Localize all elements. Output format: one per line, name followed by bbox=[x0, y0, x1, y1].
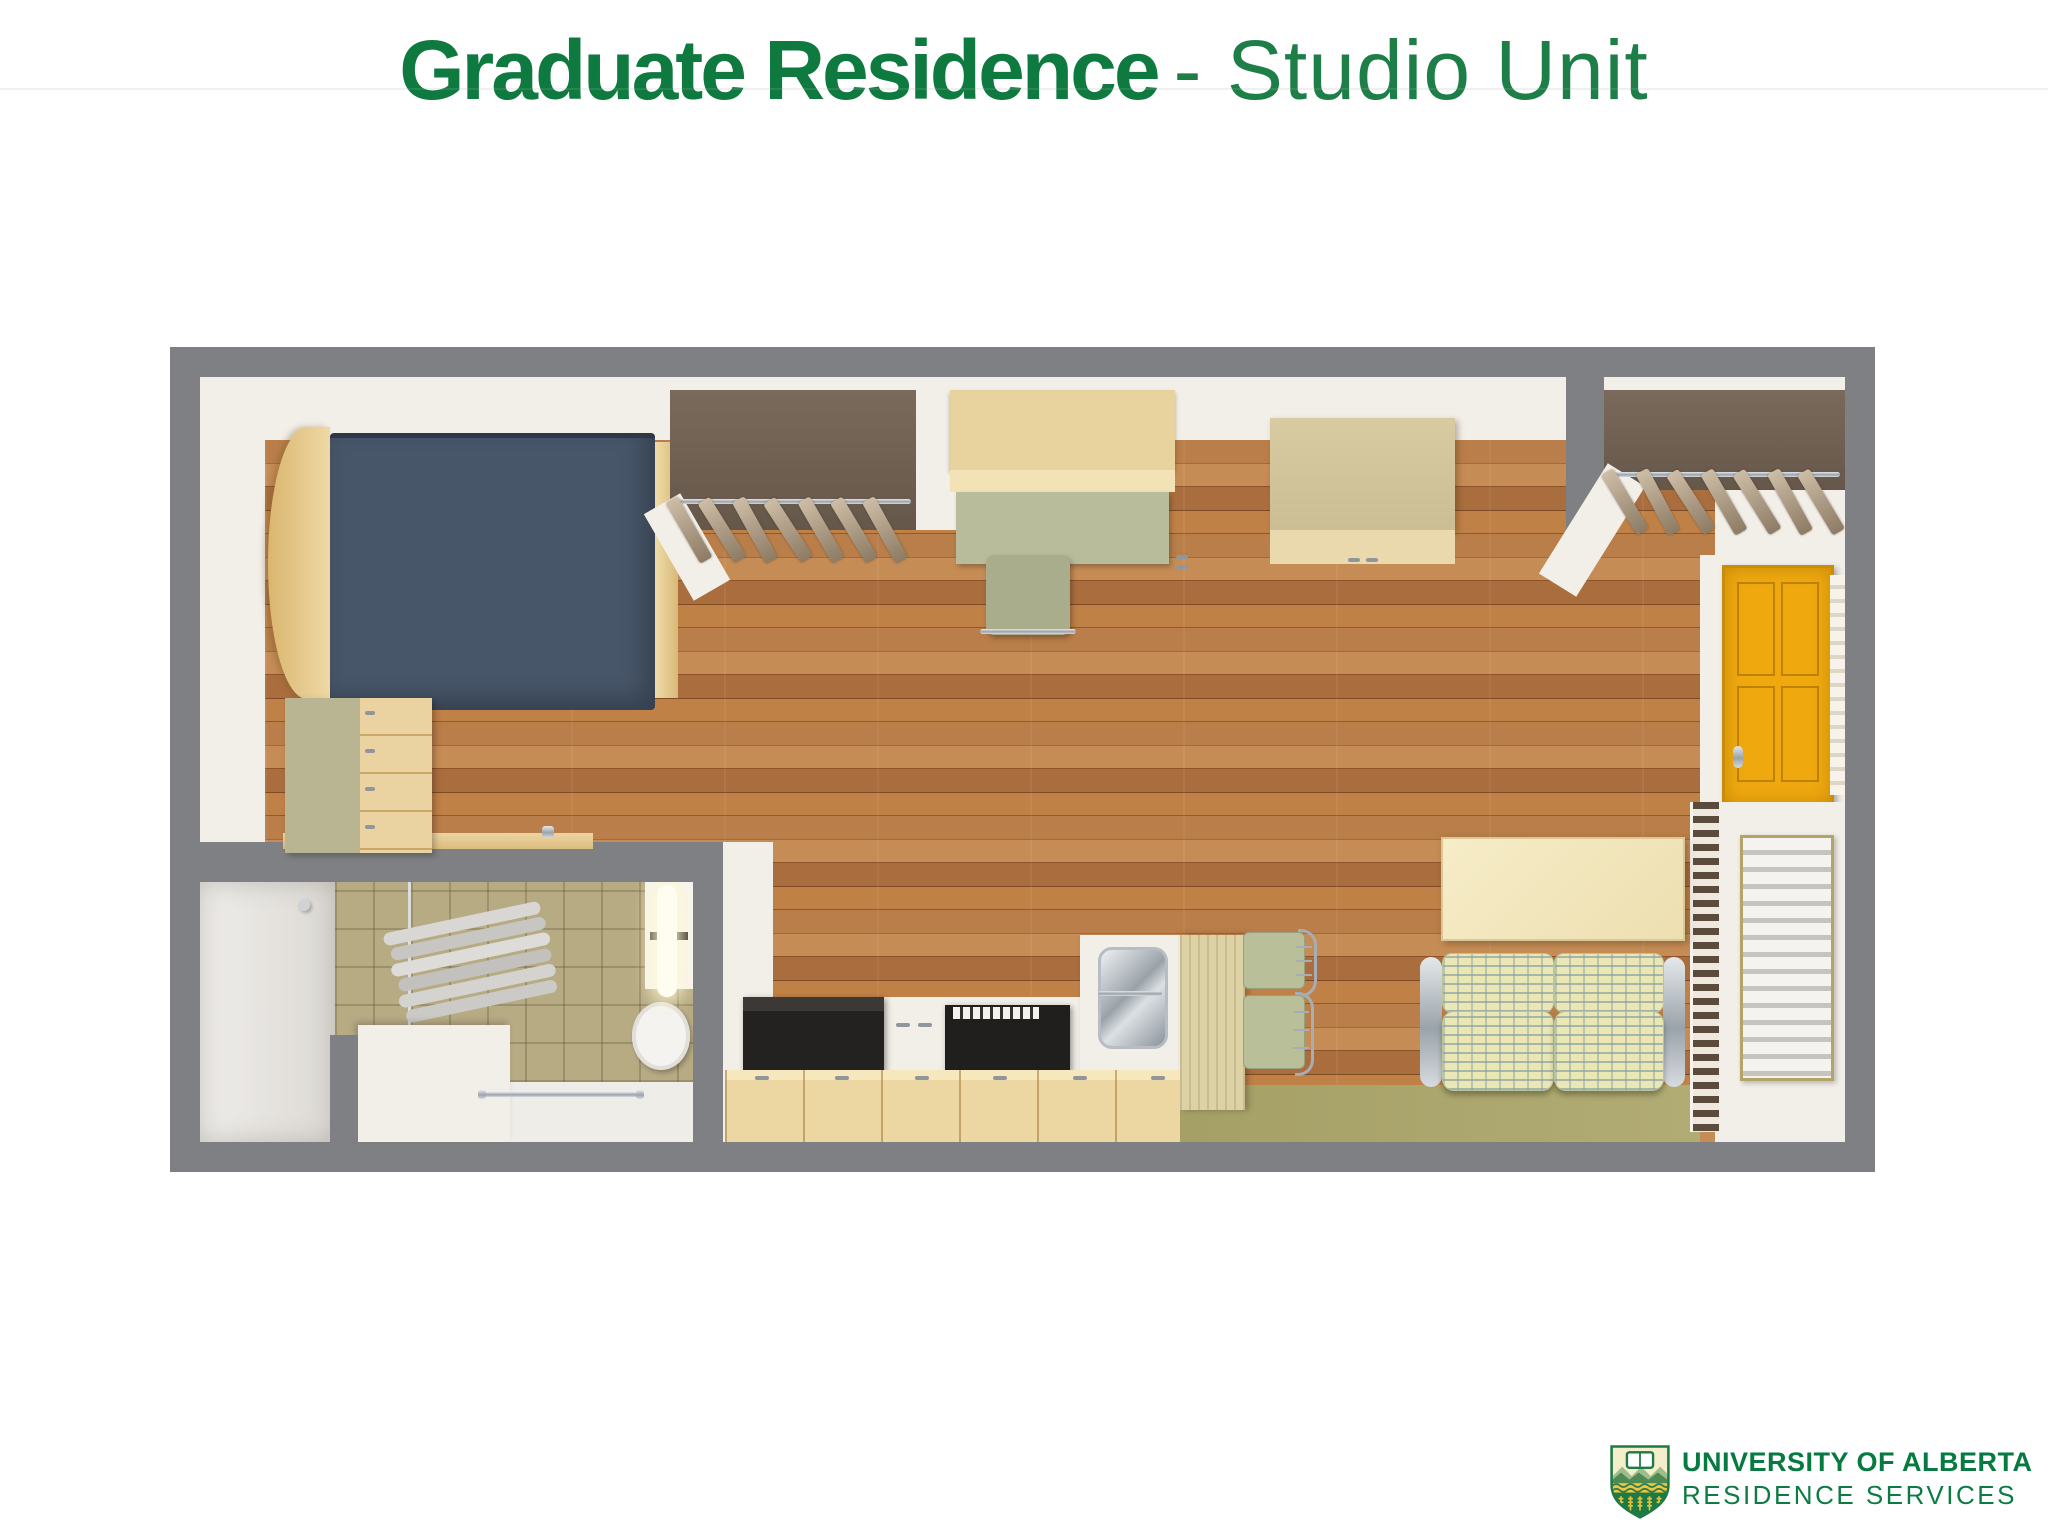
title-rest: - Studio Unit bbox=[1174, 23, 1649, 117]
loveseat-arm bbox=[1420, 957, 1442, 1087]
grab-bar-foot bbox=[636, 1090, 644, 1099]
dining-chair-back bbox=[1298, 929, 1317, 997]
wall-mounted-table bbox=[1441, 837, 1685, 941]
loveseat-seat-cushion bbox=[1442, 1011, 1554, 1091]
dining-chair-back bbox=[1295, 992, 1314, 1076]
range bbox=[945, 1005, 1070, 1078]
shower-stall bbox=[200, 882, 335, 1142]
range-controls bbox=[953, 1007, 1039, 1019]
entry-door bbox=[1722, 565, 1834, 806]
refrigerator bbox=[743, 997, 884, 1075]
grab-bar-foot bbox=[478, 1090, 486, 1099]
loveseat-back-cushion bbox=[1554, 953, 1664, 1013]
title-emphasis: Graduate Residence bbox=[399, 23, 1157, 117]
background-divider bbox=[0, 88, 2048, 90]
kitchen-island bbox=[1180, 935, 1245, 1110]
bathroom-wall-right bbox=[693, 842, 723, 1142]
wardrobe bbox=[285, 698, 432, 853]
vanity-light bbox=[657, 885, 677, 997]
desk-chair-base bbox=[980, 629, 1076, 634]
university-logo: UNIVERSITY OF ALBERTA RESIDENCE SERVICES bbox=[1608, 1444, 2028, 1520]
bed bbox=[330, 433, 655, 710]
floorplan-rendering bbox=[170, 347, 1875, 1172]
louvered-panel bbox=[1740, 835, 1834, 1081]
logo-line2: RESIDENCE SERVICES bbox=[1682, 1480, 2017, 1511]
door-sidelight bbox=[1830, 575, 1845, 795]
utility-vent bbox=[1690, 802, 1719, 1132]
kitchen-sink bbox=[1098, 947, 1168, 1049]
grab-bar bbox=[482, 1092, 640, 1097]
loveseat-seat-cushion bbox=[1554, 1011, 1664, 1091]
door-handle-icon bbox=[1733, 746, 1743, 768]
logo-line1: UNIVERSITY OF ALBERTA bbox=[1682, 1447, 2033, 1478]
bathroom-half-wall bbox=[358, 1025, 510, 1142]
sink-faucet-icon bbox=[1098, 991, 1162, 996]
page-title: Graduate Residence- Studio Unit bbox=[0, 22, 2048, 119]
desk-chair bbox=[986, 555, 1070, 635]
faucet-icon bbox=[542, 826, 554, 838]
loveseat-back-cushion bbox=[1442, 953, 1554, 1013]
carpet bbox=[1180, 1085, 1700, 1142]
base-cabinets bbox=[725, 1070, 1180, 1142]
desk-hutch-front bbox=[950, 470, 1175, 492]
overhead-cabinet bbox=[1270, 418, 1455, 530]
university-shield-icon bbox=[1608, 1444, 1672, 1520]
overhead-cabinet-front bbox=[1270, 530, 1455, 564]
loveseat-arm bbox=[1663, 957, 1685, 1087]
shower-head-icon bbox=[298, 899, 310, 911]
desk-surface bbox=[956, 492, 1169, 564]
bathroom-partition-wall bbox=[330, 1035, 358, 1142]
desk-hutch bbox=[950, 390, 1175, 470]
toilet bbox=[632, 1002, 690, 1070]
